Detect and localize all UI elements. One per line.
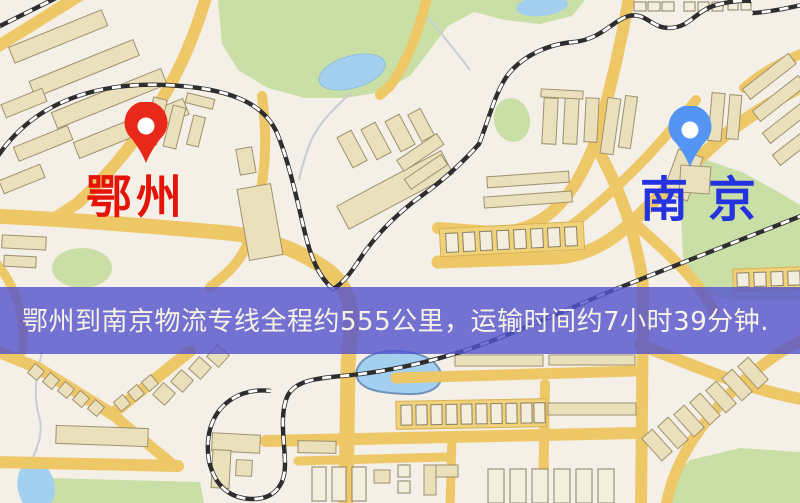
- logistics-route-map: 鄂州 南京 鄂州到南京物流专线全程约555公里，运输时间约7小时39分钟.: [0, 0, 800, 503]
- map-background: [0, 0, 800, 503]
- origin-city-label: 鄂州: [86, 174, 186, 220]
- route-info-banner: 鄂州到南京物流专线全程约555公里，运输时间约7小时39分钟.: [0, 287, 800, 354]
- destination-pin-icon: [667, 106, 713, 169]
- origin-pin-icon: [123, 102, 169, 165]
- route-info-text: 鄂州到南京物流专线全程约555公里，运输时间约7小时39分钟.: [22, 307, 769, 337]
- destination-city-label: 南京: [640, 176, 776, 224]
